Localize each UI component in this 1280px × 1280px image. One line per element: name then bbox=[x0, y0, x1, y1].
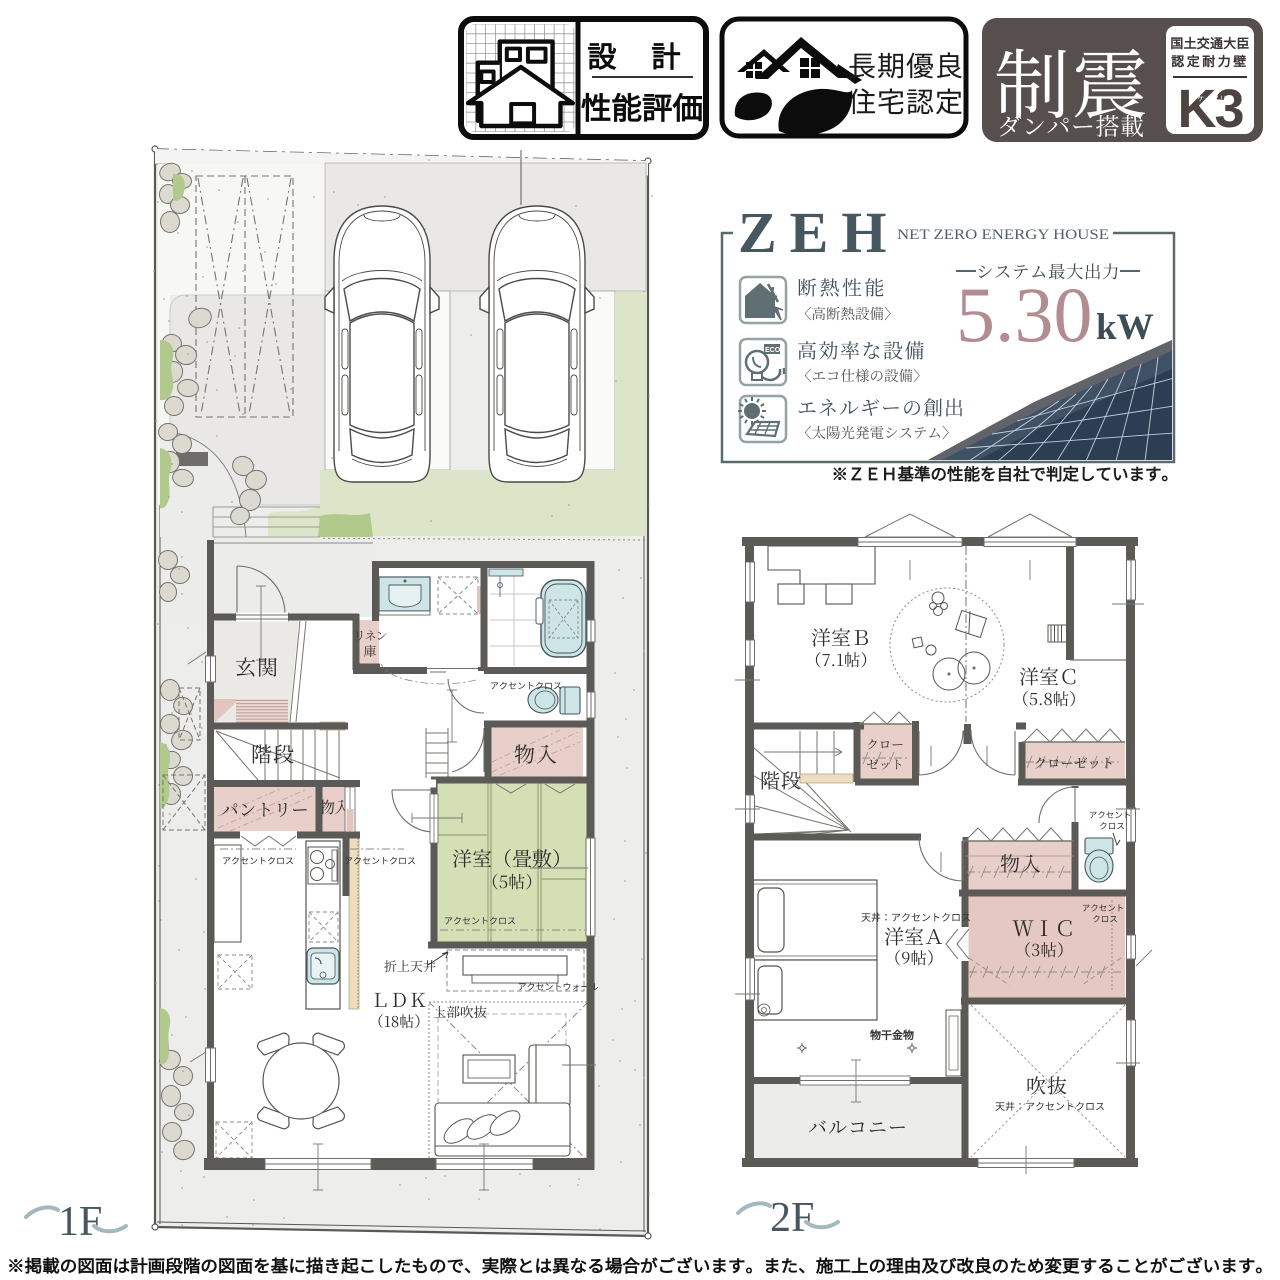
svg-text:アクセントウォール: アクセントウォール bbox=[517, 980, 598, 993]
svg-text:性能評価: 性能評価 bbox=[581, 84, 703, 128]
svg-text:（7.1帖）: （7.1帖） bbox=[805, 647, 877, 671]
svg-text:kW: kW bbox=[1096, 307, 1154, 348]
svg-text:エネルギーの創出: エネルギーの創出 bbox=[797, 392, 965, 421]
svg-text:庫: 庫 bbox=[363, 641, 376, 660]
svg-text:パントリー: パントリー bbox=[221, 797, 309, 822]
svg-text:ケースリー: ケースリー bbox=[1197, 94, 1235, 104]
svg-text:クロー: クロー bbox=[866, 735, 904, 753]
svg-text:上部吹抜: 上部吹抜 bbox=[433, 1001, 487, 1021]
svg-text:（5帖）: （5帖） bbox=[482, 868, 543, 893]
svg-text:〈高断熱設備〉: 〈高断熱設備〉 bbox=[797, 303, 899, 324]
svg-text:K3: K3 bbox=[1177, 79, 1243, 139]
svg-text:クロス: クロス bbox=[1092, 913, 1118, 925]
svg-text:物入: 物入 bbox=[514, 739, 558, 769]
svg-text:クロス: クロス bbox=[1099, 820, 1125, 832]
svg-text:（9帖）: （9帖） bbox=[885, 945, 944, 969]
svg-text:物入: 物入 bbox=[1000, 848, 1042, 877]
svg-text:1F: 1F bbox=[58, 1199, 102, 1245]
svg-text:長期優良: 長期優良 bbox=[848, 45, 964, 85]
svg-text:吹抜: 吹抜 bbox=[1026, 1070, 1068, 1099]
svg-text:※掲載の図面は計画段階の図面を基に描き起こしたもので、実際と: ※掲載の図面は計画段階の図面を基に描き起こしたもので、実際とは異なる場合がござい… bbox=[7, 1252, 1273, 1277]
svg-text:アクセントクロス: アクセントクロス bbox=[222, 854, 294, 867]
svg-text:ECO: ECO bbox=[765, 347, 781, 354]
svg-text:NET ZERO ENERGY HOUSE: NET ZERO ENERGY HOUSE bbox=[897, 227, 1109, 243]
svg-text:ＬＤＫ: ＬＤＫ bbox=[370, 986, 427, 1013]
svg-text:ゼット: ゼット bbox=[866, 755, 904, 773]
svg-text:認定耐力壁: 認定耐力壁 bbox=[1171, 51, 1249, 70]
svg-text:階段: 階段 bbox=[251, 739, 295, 769]
svg-text:天井：アクセントクロス: 天井：アクセントクロス bbox=[861, 909, 971, 924]
svg-text:（18帖）: （18帖） bbox=[369, 1011, 429, 1032]
svg-text:アクセントクロス: アクセントクロス bbox=[444, 914, 516, 927]
svg-text:（3帖）: （3帖） bbox=[1015, 937, 1074, 961]
svg-text:〈太陽光発電システム〉: 〈太陽光発電システム〉 bbox=[797, 422, 957, 443]
svg-text:ZEH: ZEH bbox=[738, 200, 900, 265]
svg-text:〈エコ仕様の設備〉: 〈エコ仕様の設備〉 bbox=[797, 365, 928, 386]
svg-text:2F: 2F bbox=[770, 1195, 814, 1241]
svg-text:階段: 階段 bbox=[760, 765, 802, 794]
svg-text:国土交通大臣: 国土交通大臣 bbox=[1170, 33, 1249, 52]
svg-text:ダンパー搭載: ダンパー搭載 bbox=[998, 107, 1145, 142]
svg-text:バルコニー: バルコニー bbox=[808, 1113, 908, 1140]
svg-text:玄関: 玄関 bbox=[235, 652, 279, 682]
svg-text:（5.8帖）: （5.8帖） bbox=[1012, 686, 1085, 710]
svg-text:5.30: 5.30 bbox=[956, 271, 1093, 358]
svg-text:計: 計 bbox=[651, 34, 680, 76]
svg-text:高効率な設備: 高効率な設備 bbox=[797, 335, 926, 364]
svg-text:折上天井: 折上天井 bbox=[384, 956, 436, 975]
svg-text:アクセントクロス: アクセントクロス bbox=[344, 854, 416, 867]
svg-text:クローゼット: クローゼット bbox=[1034, 752, 1115, 772]
svg-text:天井：アクセントクロス: 天井：アクセントクロス bbox=[995, 1098, 1105, 1113]
svg-text:住宅認定: 住宅認定 bbox=[848, 81, 964, 121]
svg-text:断熱性能: 断熱性能 bbox=[797, 272, 887, 301]
svg-text:物干金物: 物干金物 bbox=[870, 1027, 914, 1043]
svg-text:※ＺＥＨ基準の性能を自社で判定しています。: ※ＺＥＨ基準の性能を自社で判定しています。 bbox=[832, 461, 1179, 485]
svg-text:アクセントクロス: アクセントクロス bbox=[490, 679, 562, 692]
svg-text:設: 設 bbox=[587, 34, 617, 76]
